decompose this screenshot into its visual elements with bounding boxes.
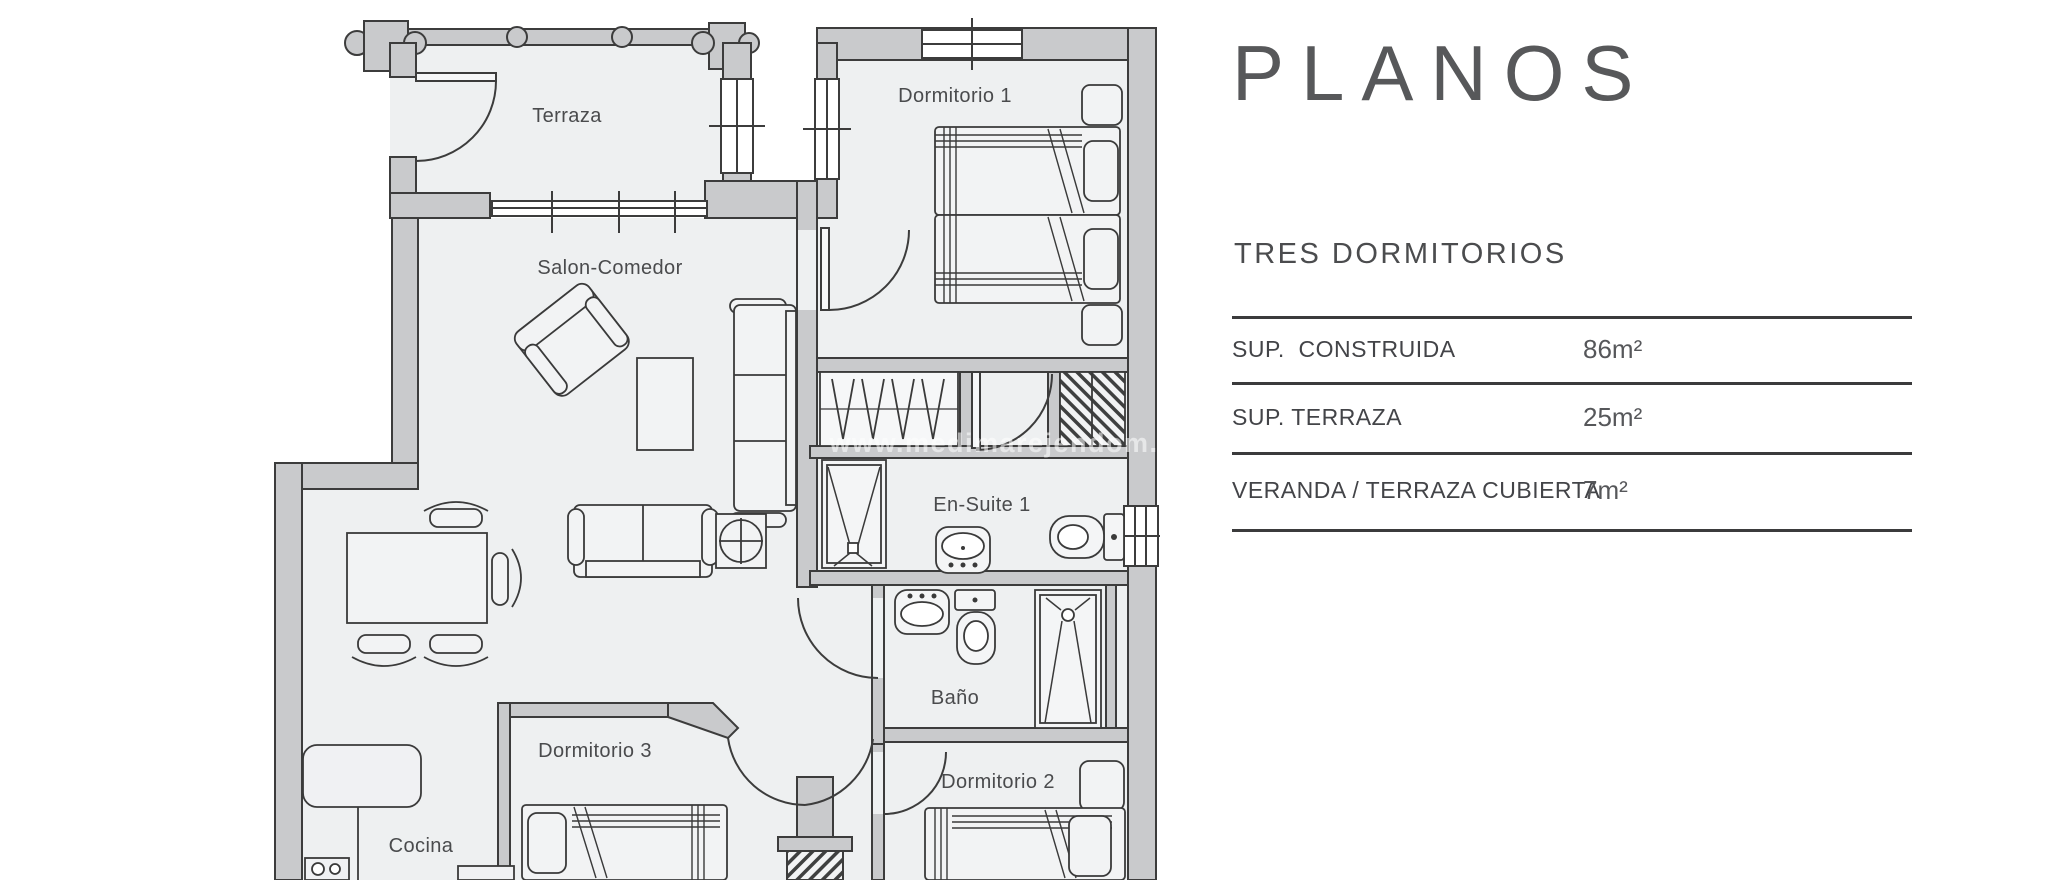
spec-row-construida: SUP. CONSTRUIDA 86m² (1232, 316, 1912, 382)
spec-row-terraza: SUP. TERRAZA 25m² (1232, 382, 1912, 452)
room-label-dormitorio2: Dormitorio 2 (941, 771, 1055, 793)
spec-label: SUP. TERRAZA (1232, 404, 1402, 431)
spec-row-veranda: VERANDA / TERRAZA CUBIERTA 7m² (1232, 452, 1912, 529)
divider (1232, 529, 1912, 532)
page-title: PLANOS (1232, 28, 1650, 119)
floor-plan-container: Terraza Dormitorio 1 Salon-Comedor En-Su… (272, 15, 1160, 880)
spec-panel: PLANOS TRES DORMITORIOS SUP. CONSTRUIDA … (1232, 0, 1922, 880)
room-label-terraza: Terraza (532, 105, 602, 127)
floor-plan: Terraza Dormitorio 1 Salon-Comedor En-Su… (272, 15, 1160, 880)
room-label-salon: Salon-Comedor (537, 257, 682, 279)
spec-value: 7m² (1583, 475, 1628, 506)
spec-label: SUP. CONSTRUIDA (1232, 336, 1456, 363)
page: Terraza Dormitorio 1 Salon-Comedor En-Su… (0, 0, 2048, 880)
plan-subtitle: TRES DORMITORIOS (1234, 238, 1567, 271)
room-label-cocina: Cocina (389, 835, 454, 857)
room-label-bano: Baño (931, 687, 979, 709)
dormitorio3-furniture (522, 805, 727, 880)
room-label-dormitorio1: Dormitorio 1 (898, 85, 1012, 107)
watermark: www.medimarejendom.com (828, 428, 1160, 458)
service-shaft (787, 851, 843, 880)
room-label-dormitorio3: Dormitorio 3 (538, 740, 652, 762)
spec-label: VERANDA / TERRAZA CUBIERTA (1232, 477, 1600, 504)
room-label-ensuite: En-Suite 1 (933, 494, 1030, 516)
spec-value: 25m² (1583, 402, 1642, 433)
spec-value: 86m² (1583, 334, 1642, 365)
